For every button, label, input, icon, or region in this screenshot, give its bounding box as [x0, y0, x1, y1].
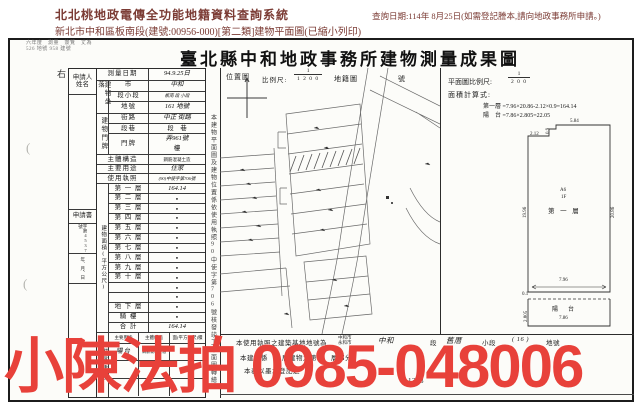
applicant-blank — [69, 95, 96, 210]
plan-scale-fraction: 1 2 0 0 — [508, 71, 530, 85]
floor-value: ● — [149, 244, 205, 253]
dim-top-left: 2.12 — [530, 132, 539, 137]
floor-row: 第 六 層● — [109, 234, 205, 244]
floor-value: ● — [149, 253, 205, 262]
dim-notch: 0.9 — [546, 128, 551, 134]
area-calc-label: 面積計算式: — [448, 90, 491, 100]
floor-suffix: 樓 — [174, 146, 181, 153]
floor-row: 第 一 層164.14 — [109, 184, 205, 194]
red-watermark: 小陳法拍 0985-048006 — [4, 318, 582, 405]
floor-label: 第 五 層 — [109, 224, 149, 233]
query-date: 查詢日期:114年 8月25日(如需登記謄本,請向地政事務所申請。) — [372, 10, 601, 22]
building-area-label: 建物面積(平方公尺) — [97, 184, 109, 332]
floor-row: 第 十 層● — [109, 273, 205, 283]
building-area-group: 建物面積(平方公尺) 第 一 層164.14 第 二 層● 第 三 層● 第 四… — [97, 184, 205, 333]
cadastral-map — [220, 68, 440, 334]
applicant-header: 申請人 姓名 — [69, 69, 96, 95]
floor-label: 第 八 層 — [109, 253, 149, 262]
floor-value: ● — [149, 204, 205, 213]
floor-row: 第 九 層● — [109, 263, 205, 273]
panel-divider — [440, 68, 441, 334]
scan-artifact: ( — [23, 276, 27, 292]
application-date: 年、月、日 — [80, 257, 85, 280]
floor-value: ● — [149, 224, 205, 233]
survey-date-label: 測量日期 — [97, 69, 149, 80]
section-value: 板南 段 小段 — [149, 92, 205, 102]
lane-label: 段巷 — [109, 124, 149, 133]
building-location-group: 建物坐落 市 中和 段小段 板南 段 小段 地號 161 地號 — [97, 81, 205, 114]
floor-row: 第 四 層● — [109, 214, 205, 224]
use-row: 主要用途 住家 — [97, 165, 205, 174]
floor-label: 第 六 層 — [109, 234, 149, 243]
street-value: 中正 街路 — [149, 114, 205, 124]
section-row: 段小段 板南 段 小段 — [109, 92, 205, 103]
floor-value: ● — [149, 263, 205, 272]
area-calc-line-2: 陽 台 =7.86×2.805=22.05 — [483, 110, 550, 119]
land-query-page: 北北桃地政電傳全功能地籍資料查詢系統 查詢日期:114年 8月25日(如需登記謄… — [0, 0, 640, 410]
floor-label: 第 三 層 — [109, 204, 149, 213]
application-book-label: 申請書 — [69, 210, 96, 224]
map-compass — [227, 78, 267, 118]
dim-right: 20.86 — [611, 207, 616, 218]
floor-label: 第 二 層 — [109, 194, 149, 203]
floor-label: 第 一 層 — [109, 184, 149, 193]
parcel-value: 161 地號 — [149, 102, 205, 113]
scan-artifact: ( — [26, 140, 30, 156]
floor-label — [109, 283, 149, 292]
floor-row: 第 七 層● — [109, 244, 205, 254]
margin-char: 右 — [57, 67, 66, 80]
map-annotations — [240, 127, 430, 315]
floor-label: 第 四 層 — [109, 214, 149, 223]
parcel-label: 地號 — [109, 102, 149, 113]
structure-label: 主體構造 — [97, 155, 149, 164]
license-label: 使用執照 — [97, 174, 149, 183]
stamp-line-2: 526 地號 958 建號 — [26, 47, 122, 53]
door-label: 門牌 — [109, 134, 149, 154]
floor-plan: 2.12 0.9 5.84 19.96 20.86 A6 1F 第 一 層 7.… — [522, 122, 614, 330]
document-subtitle: 新北市中和區板南段(建號:00956-000)[第二類]建物平面圖(已縮小列印) — [55, 23, 361, 38]
street-row: 街路 中正 街路 — [109, 114, 205, 125]
floor-row: ● — [109, 293, 205, 303]
floor-row: 第 五 層● — [109, 224, 205, 234]
dim-left: 19.96 — [523, 207, 528, 218]
floor-label: 第 七 層 — [109, 244, 149, 253]
floor-plan-outline — [522, 122, 614, 330]
floor-value: ● — [149, 234, 205, 243]
plan-scale-label: 平面圖比例尺: — [448, 77, 492, 87]
applicant-name-label: 姓名 — [76, 82, 89, 89]
floor-label: 地 下 層 — [109, 303, 149, 312]
license-row: 使用執照 (90)中使字第706號 — [97, 174, 205, 184]
dim-gap: 0.1 — [522, 292, 528, 297]
floor-value: ● — [149, 194, 205, 203]
floor-value: 164.14 — [149, 184, 205, 193]
building-location-label: 建物坐落 — [97, 81, 109, 113]
door-value: 弄961號 — [166, 136, 189, 143]
map-hatched-parcel — [290, 148, 360, 172]
license-value: (90)中使字第706號 — [149, 174, 205, 183]
building-address-group: 建物門牌 街路 中正 街路 段巷 段 巷 門牌 — [97, 114, 205, 156]
dim-top: 5.84 — [570, 119, 579, 124]
application-number: 字第4537號 — [78, 224, 87, 253]
floor-row: 地 下 層● — [109, 303, 205, 313]
floor-tag: 1F — [561, 195, 566, 200]
floor-label: 第 九 層 — [109, 263, 149, 272]
structure-row: 主體構造 鋼筋混凝土造 — [97, 155, 205, 165]
floor-value: ● — [149, 303, 205, 312]
map-parcels — [220, 68, 440, 334]
plan-scale-denominator: 2 0 0 — [508, 77, 530, 85]
floor-value: ● — [149, 283, 205, 292]
parcel-row: 地號 161 地號 — [109, 102, 205, 113]
floor-row: ● — [109, 283, 205, 293]
use-value: 住家 — [149, 165, 205, 173]
floor-value: ● — [149, 293, 205, 302]
unit-code: A6 — [560, 188, 566, 193]
room-label: 第 一 層 — [548, 205, 581, 215]
court-stamp: 六年度 測量 簽覽 丈為 526 地號 958 建號 — [26, 41, 122, 53]
use-label: 主要用途 — [97, 165, 149, 173]
city-label: 市 — [109, 81, 149, 91]
floor-row: 第 二 層● — [109, 194, 205, 204]
city-row: 市 中和 — [109, 81, 205, 92]
balcony-label: 陽 台 — [552, 304, 576, 313]
city-value: 中和 — [149, 81, 205, 91]
dim-bottom: 7.96 — [559, 278, 568, 283]
structure-value: 鋼筋混凝土造 — [149, 155, 205, 164]
door-row: 門牌 弄961號 樓 — [109, 134, 205, 154]
floor-value: ● — [149, 273, 205, 282]
document-title: 臺北縣中和地政事務所建物測量成果圖 — [130, 45, 570, 70]
survey-date-row: 測量日期 94.9.25日 — [97, 69, 205, 81]
building-address-label: 建物門牌 — [97, 114, 109, 155]
lane-row: 段巷 段 巷 — [109, 124, 205, 134]
floor-label: 第 十 層 — [109, 273, 149, 282]
system-title: 北北桃地政電傳全功能地籍資料查詢系統 — [55, 6, 289, 23]
section-label: 段小段 — [109, 92, 149, 102]
street-label: 街路 — [109, 114, 149, 124]
survey-date-value: 94.9.25日 — [149, 69, 205, 80]
lane-value: 段 巷 — [149, 124, 205, 133]
floor-row: 第 三 層● — [109, 204, 205, 214]
floor-value: ● — [149, 214, 205, 223]
floor-label — [109, 293, 149, 302]
area-calc-line-1: 第一層 =7.96×20.86-2.12×0.9=164.14 — [483, 101, 577, 110]
floor-row: 第 八 層● — [109, 253, 205, 263]
